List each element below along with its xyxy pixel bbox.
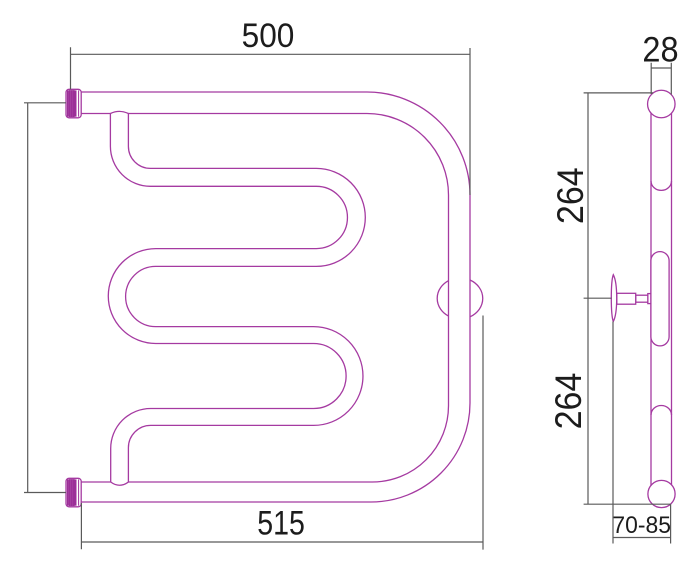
svg-text:264: 264 [548,373,590,430]
svg-text:500: 500 [242,16,295,54]
svg-text:28: 28 [642,30,678,69]
svg-text:515: 515 [257,504,305,542]
svg-text:70-85: 70-85 [612,512,671,539]
svg-text:264: 264 [550,167,592,224]
